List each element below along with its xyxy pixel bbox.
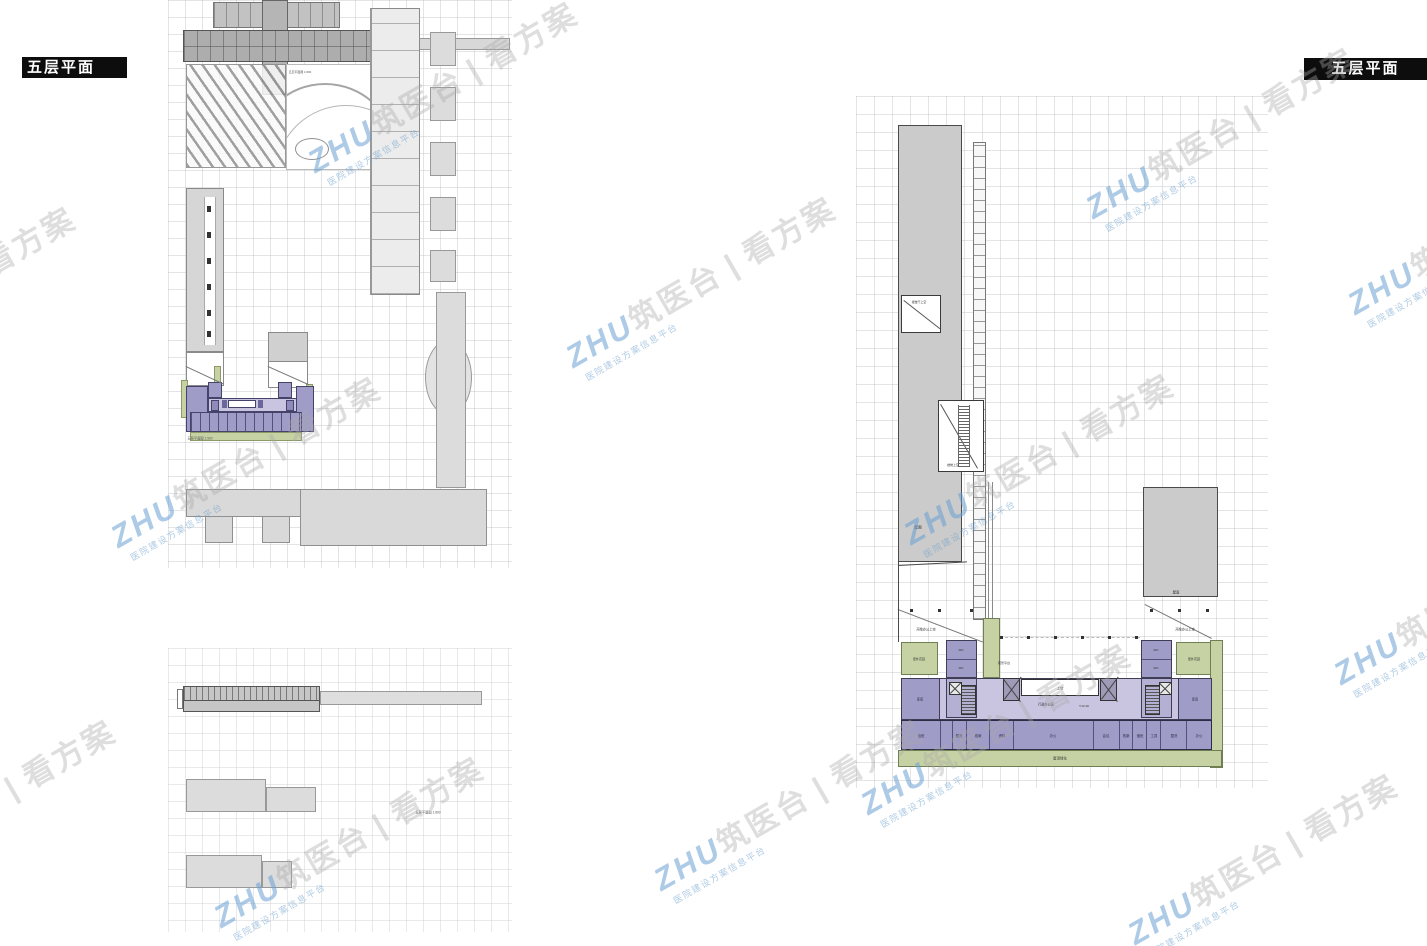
watermark: ZHU筑医台|看方案 医院建设方案信息平台 — [1122, 769, 1411, 946]
parking-hatch — [186, 64, 286, 168]
watermark: ZHU筑医台|看方案 医院建设方案信息平台 — [560, 192, 849, 387]
dorm-rooms — [184, 687, 319, 701]
column-dot — [938, 609, 941, 612]
room: 办公 — [1186, 721, 1211, 749]
mini-plan-core — [258, 400, 263, 408]
dorm-slab-cap — [177, 689, 183, 709]
core-mark — [207, 331, 211, 337]
wc-block-left — [946, 640, 977, 678]
column-dot — [1081, 636, 1084, 639]
room: 盥洗 — [1160, 721, 1186, 749]
stair-hatch — [1145, 685, 1160, 715]
courtyard-dashed-line — [1000, 637, 1140, 638]
room: 工具 — [1146, 721, 1160, 749]
left-wing-bar — [186, 188, 224, 352]
garden-left-label: 室外花园 — [913, 657, 925, 661]
column-dot — [1027, 636, 1030, 639]
mini-plan-gray-right — [268, 332, 308, 362]
mini-plan-caption: 五层平面图 1:500 — [187, 436, 212, 441]
room: 值班 — [1132, 721, 1146, 749]
wc-divider — [1142, 659, 1171, 660]
column-dot — [1150, 609, 1153, 612]
roof-label-right: 屋面 — [1173, 590, 1180, 595]
open-office-right-label: 开敞办公上空 — [1175, 627, 1194, 632]
watermark: ZHU筑医台|看方案 医院建设方案信息平台 — [1342, 139, 1427, 334]
core-mark — [207, 232, 211, 238]
platform-label: 观景平台 — [998, 661, 1010, 665]
bottom-room-row: 值班 盥洗 档案 资料 办公 会议 档案 值班 工具 盥洗 办公 — [901, 720, 1212, 750]
right-title: 五层平面 — [1331, 60, 1399, 77]
mini-plan-stair — [286, 400, 294, 411]
column-dot — [910, 609, 913, 612]
lower-slab-b — [186, 855, 262, 888]
mini-plan-wc-right — [278, 382, 292, 398]
wc-label: WC — [958, 648, 963, 651]
mini-plan-void — [228, 400, 256, 408]
elevator-core-center-left — [1003, 678, 1020, 701]
comb-stub — [430, 197, 456, 231]
room: 盥洗 — [952, 721, 966, 749]
level-value: 12.00 — [1081, 704, 1089, 707]
bottom-slab-tab — [262, 517, 290, 543]
column-dot — [1054, 636, 1057, 639]
store-right-label: 库房 — [1192, 697, 1198, 702]
site-caption: 五层平面图 1:800 — [289, 70, 311, 74]
stair-core-right — [1141, 678, 1172, 718]
sheet: 五层平面 五层平面 五层平面图 1:800 五层平 — [0, 0, 1427, 946]
bottom-slab-tab — [205, 517, 233, 543]
column-dot — [1108, 636, 1111, 639]
room: 档案 — [1119, 721, 1133, 749]
dorm-slab — [183, 686, 320, 712]
wc-label: WC — [1153, 648, 1158, 651]
watermark: ZHU筑医台|看方案 医院建设方案信息平台 — [1328, 509, 1427, 704]
wc-block-right — [1141, 640, 1172, 678]
column-dot — [1000, 636, 1003, 639]
tower-left — [898, 125, 962, 562]
level-marker: ▽12.00 — [1079, 704, 1089, 708]
right-title-bar: 五层平面 — [1304, 58, 1427, 80]
core-channel — [204, 197, 216, 345]
column-dot — [970, 609, 973, 612]
curtain-wall-line — [992, 482, 993, 618]
column-dot — [1206, 609, 1209, 612]
pond-ellipse — [295, 138, 329, 160]
lower-slab-a — [186, 779, 266, 812]
dorm-slab-tail — [320, 691, 482, 705]
room: 值班 — [902, 721, 940, 749]
room: 会议 — [1093, 721, 1119, 749]
hall-void-label: 报告厅上空 — [912, 300, 926, 304]
room — [940, 721, 952, 749]
roof-label-left: 屋面 — [914, 524, 922, 529]
store-left-label: 库房 — [917, 697, 923, 702]
left-title-bar: 五层平面 — [22, 57, 127, 78]
comb-building-body — [370, 8, 420, 295]
right-wing-bar — [436, 292, 466, 488]
room: 档案 — [966, 721, 990, 749]
watermark: ZHU筑医台|看方案 医院建设方案信息平台 — [0, 202, 89, 397]
lower-caption: 五层平面图 1:800 — [415, 810, 440, 815]
stair-hatch — [961, 685, 976, 715]
room: 资料 — [989, 721, 1013, 749]
stair-core-left — [946, 678, 977, 718]
core-mark — [207, 258, 211, 264]
wc-divider — [947, 659, 976, 660]
core-mark — [207, 310, 211, 316]
comb-stub — [430, 87, 456, 121]
open-office-left-label: 开敞办公上空 — [916, 627, 935, 632]
site-building-main-slab — [183, 30, 372, 62]
elevator-box — [1159, 682, 1172, 695]
bottom-slab-right — [300, 489, 487, 546]
mini-plan-wc-left — [208, 382, 222, 398]
core-mark — [207, 206, 211, 212]
wc-label: WC — [1153, 666, 1158, 669]
lower-slab-a2 — [266, 787, 316, 812]
tower-right — [1143, 487, 1218, 597]
room: 办公 — [1013, 721, 1092, 749]
comb-stub — [430, 32, 456, 66]
mini-plan-core — [222, 400, 227, 408]
curtain-wall-line — [988, 482, 989, 618]
garden-right-label: 室外花园 — [1188, 657, 1200, 661]
core-mark — [207, 284, 211, 290]
comb-stub — [430, 250, 456, 282]
column-dot — [1178, 609, 1181, 612]
elevator-core-center-right — [1100, 678, 1117, 701]
wc-label: WC — [958, 666, 963, 669]
stair-void-label: 楼梯上空 — [947, 463, 959, 467]
admin-zone-label: 行政办公区 — [1038, 702, 1054, 707]
stair-flight — [958, 405, 970, 467]
left-title: 五层平面 — [27, 59, 95, 76]
central-void-label: 上空 — [1057, 686, 1064, 691]
wing-left-wall — [898, 562, 899, 642]
column-dot — [1135, 636, 1138, 639]
platform-strip — [983, 618, 1000, 678]
green-bottom-label: 屋顶绿化 — [1053, 756, 1067, 761]
lower-slab-b2 — [262, 861, 292, 888]
mini-plan-stair — [211, 400, 219, 411]
tower-left-louver — [973, 142, 986, 620]
watermark: ZHU筑医台|看方案 医院建设方案信息平台 — [0, 715, 129, 910]
comb-stub — [430, 142, 456, 176]
mini-plan-bottom-row — [190, 412, 302, 432]
